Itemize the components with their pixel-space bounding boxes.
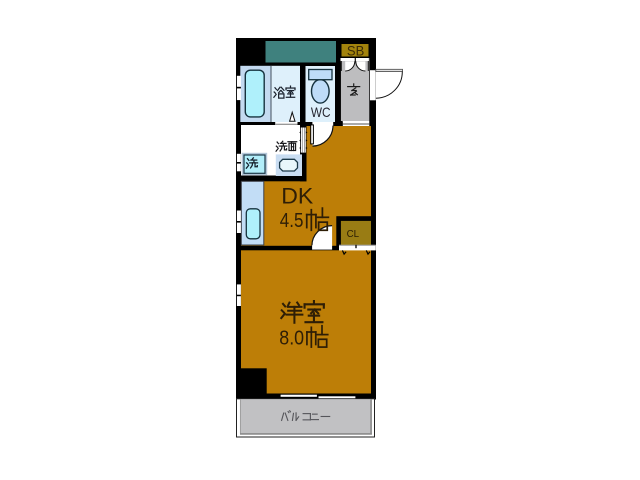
svg-text:4.5: 4.5 [280,209,304,232]
svg-text:DK: DK [281,184,313,209]
svg-text:WC: WC [311,104,331,120]
svg-text:CL: CL [347,229,360,240]
svg-text:SB: SB [347,42,364,58]
svg-text:8.0: 8.0 [279,326,304,349]
